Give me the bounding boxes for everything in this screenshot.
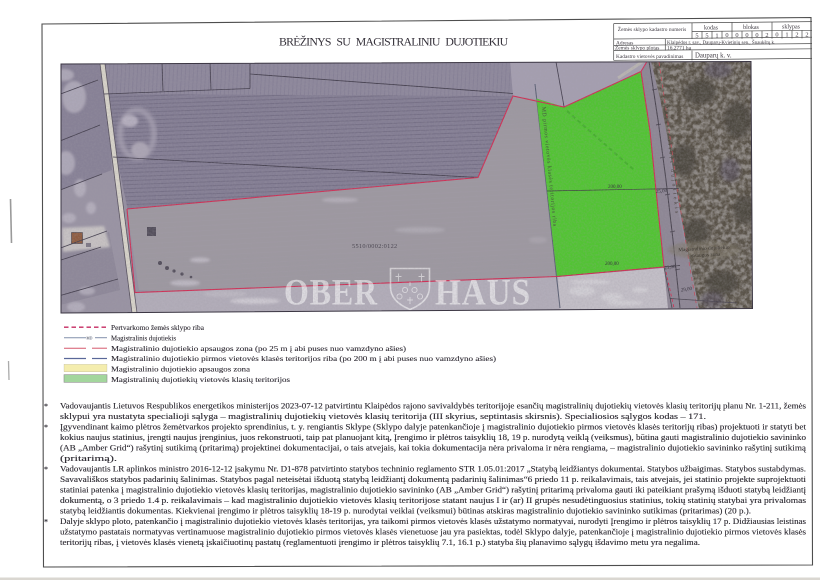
svg-text:1: 1 xyxy=(715,32,718,39)
svg-text:2: 2 xyxy=(805,31,808,38)
svg-text:16,2771 ha: 16,2771 ha xyxy=(667,45,692,51)
svg-text:*: * xyxy=(44,465,48,474)
svg-text:Vadovaujantis Lietuvos Respubl: Vadovaujantis Lietuvos Respublikos energ… xyxy=(60,402,806,411)
svg-text:Magistralinio dujotiekio apsau: Magistralinio dujotiekio apsaugos zona (… xyxy=(111,344,407,353)
svg-text:Pertvarkomo žemės sklypo riba: Pertvarkomo žemės sklypo riba xyxy=(111,323,205,332)
svg-text:Vadovaujantis LR aplinkos mini: Vadovaujantis LR aplinkos ministro 2016-… xyxy=(60,465,806,474)
svg-text:užstatymo pastatais normatyvas: užstatymo pastatais normatyvas vertinamu… xyxy=(60,528,806,537)
svg-text:1: 1 xyxy=(785,32,788,39)
svg-text:5: 5 xyxy=(705,32,708,39)
svg-text:*: * xyxy=(44,518,48,527)
svg-text:*: * xyxy=(44,402,48,411)
svg-text:2: 2 xyxy=(765,32,768,39)
svg-text:0: 0 xyxy=(745,32,748,39)
svg-text:(AB „Amber Grid“) rašytinį sut: (AB „Amber Grid“) rašytinį sutikimą (pri… xyxy=(60,444,807,453)
svg-text:Dalyje sklypo ploto, patenkanč: Dalyje sklypo ploto, patenkančio į magis… xyxy=(60,517,806,526)
svg-text:2: 2 xyxy=(795,32,798,39)
svg-text:Įgyvendinant kaimo plėtros žem: Įgyvendinant kaimo plėtros žemėtvarkos p… xyxy=(60,423,807,432)
svg-text:kodas: kodas xyxy=(704,25,719,31)
svg-text:0: 0 xyxy=(725,32,728,39)
svg-text:teritorijų ribas, į vietovės k: teritorijų ribas, į vietovės klasės vien… xyxy=(60,538,700,547)
svg-text:Žemės sklypo kadastro numeris: Žemės sklypo kadastro numeris xyxy=(618,25,686,33)
svg-text:(pritarimą).: (pritarimą). xyxy=(60,454,117,463)
svg-text:statybą leidžiantis dokumentas: statybą leidžiantis dokumentas. Kiekvien… xyxy=(60,507,751,516)
svg-text:BRĖŽINYS SU MAGISTRALINIU DUJO: BRĖŽINYS SU MAGISTRALINIU DUJOTIEKIU xyxy=(279,35,509,49)
svg-text:sklypui yra nustatyta speciali: sklypui yra nustatyta specialioji sąlyga… xyxy=(60,412,706,421)
svg-text:0: 0 xyxy=(775,32,778,39)
svg-text:0: 0 xyxy=(735,32,738,39)
svg-text:5: 5 xyxy=(695,33,698,40)
svg-text:Kadastro vietovės pavadinimas: Kadastro vietovės pavadinimas xyxy=(616,54,683,60)
svg-text:blokas: blokas xyxy=(743,25,759,31)
svg-text:sklypas: sklypas xyxy=(782,25,801,31)
svg-text:dokumentą, o 3 priedo 1.4 p. r: dokumentą, o 3 priedo 1.4 p. reikalavima… xyxy=(60,496,806,505)
svg-text:kokius naujus statinius, įreng: kokius naujus statinius, įrengti naujus … xyxy=(60,433,806,442)
svg-text:*: * xyxy=(44,423,48,432)
svg-text:Magistralinio dujotiekio apsau: Magistralinio dujotiekio apsaugos zona xyxy=(111,364,251,373)
svg-text:Magistralinio dujotiekio pirmo: Magistralinio dujotiekio pirmos vietovės… xyxy=(111,354,497,363)
svg-text:0: 0 xyxy=(755,32,758,39)
svg-text:Dauparų k. v.: Dauparų k. v. xyxy=(695,53,732,60)
svg-text:Magistralinis dujotiekis: Magistralinis dujotiekis xyxy=(111,333,176,342)
svg-text:Savavališkos statybos padarini: Savavališkos statybos padarinių šalinima… xyxy=(60,475,807,484)
svg-text:MD: MD xyxy=(87,336,93,340)
svg-text:Žemės sklypo plotas: Žemės sklypo plotas xyxy=(615,44,659,52)
svg-text:Magistralinių dujotiekių vieto: Magistralinių dujotiekių vietovės klasių… xyxy=(111,375,290,384)
svg-text:statiniai patenka į magistrali: statiniai patenka į magistralinio dujoti… xyxy=(60,486,807,495)
